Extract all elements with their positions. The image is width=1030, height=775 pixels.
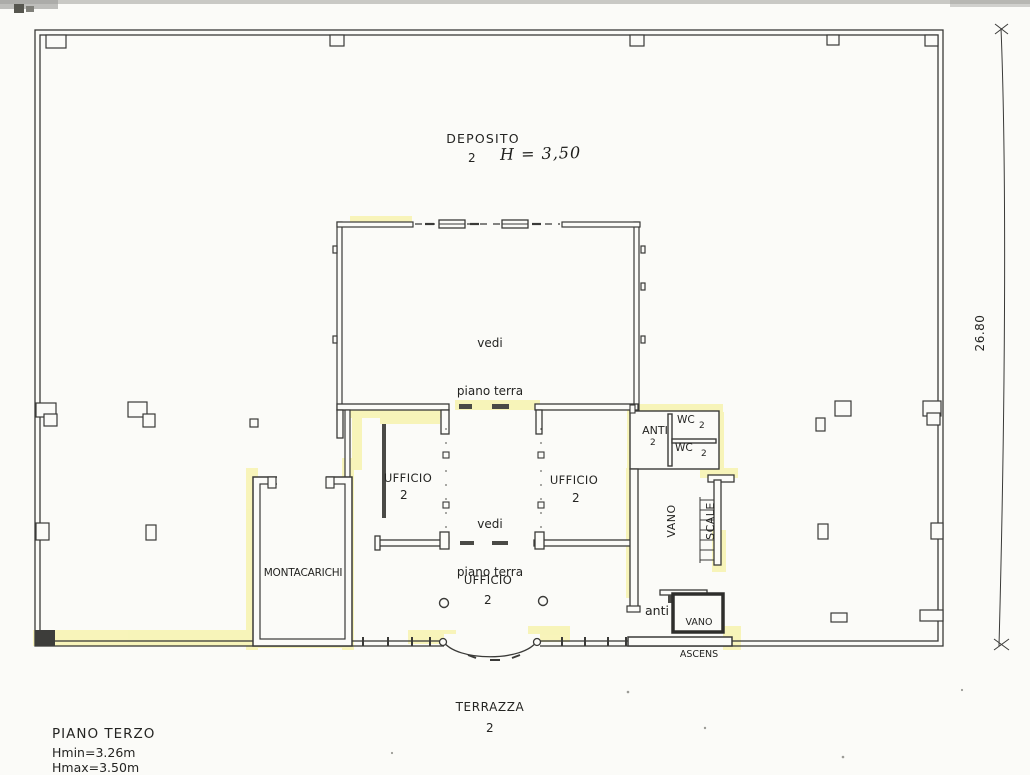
elevator-shaft-walls — [628, 594, 732, 646]
montacarichi-walls — [253, 474, 352, 646]
floor-plan-drawing — [0, 0, 1030, 770]
top-pilasters — [46, 35, 938, 48]
interior-columns — [36, 401, 943, 622]
outer-wall — [35, 30, 943, 646]
stairwell-walls — [627, 469, 734, 612]
wc-block-walls — [630, 405, 719, 469]
scanned-floor-plan-page: { "rooms": { "deposito": {"label": "DEPO… — [0, 0, 1030, 770]
column-circle-left — [440, 599, 449, 608]
facade-curve — [363, 634, 626, 660]
stair-treads — [700, 497, 714, 563]
bottom-left-corner-block — [35, 630, 55, 646]
dimension-line — [994, 24, 1009, 650]
column-circle-right — [539, 597, 548, 606]
central-room-walls — [333, 222, 645, 410]
central-room-window-symbols — [415, 220, 560, 228]
office-partitions — [345, 410, 632, 608]
